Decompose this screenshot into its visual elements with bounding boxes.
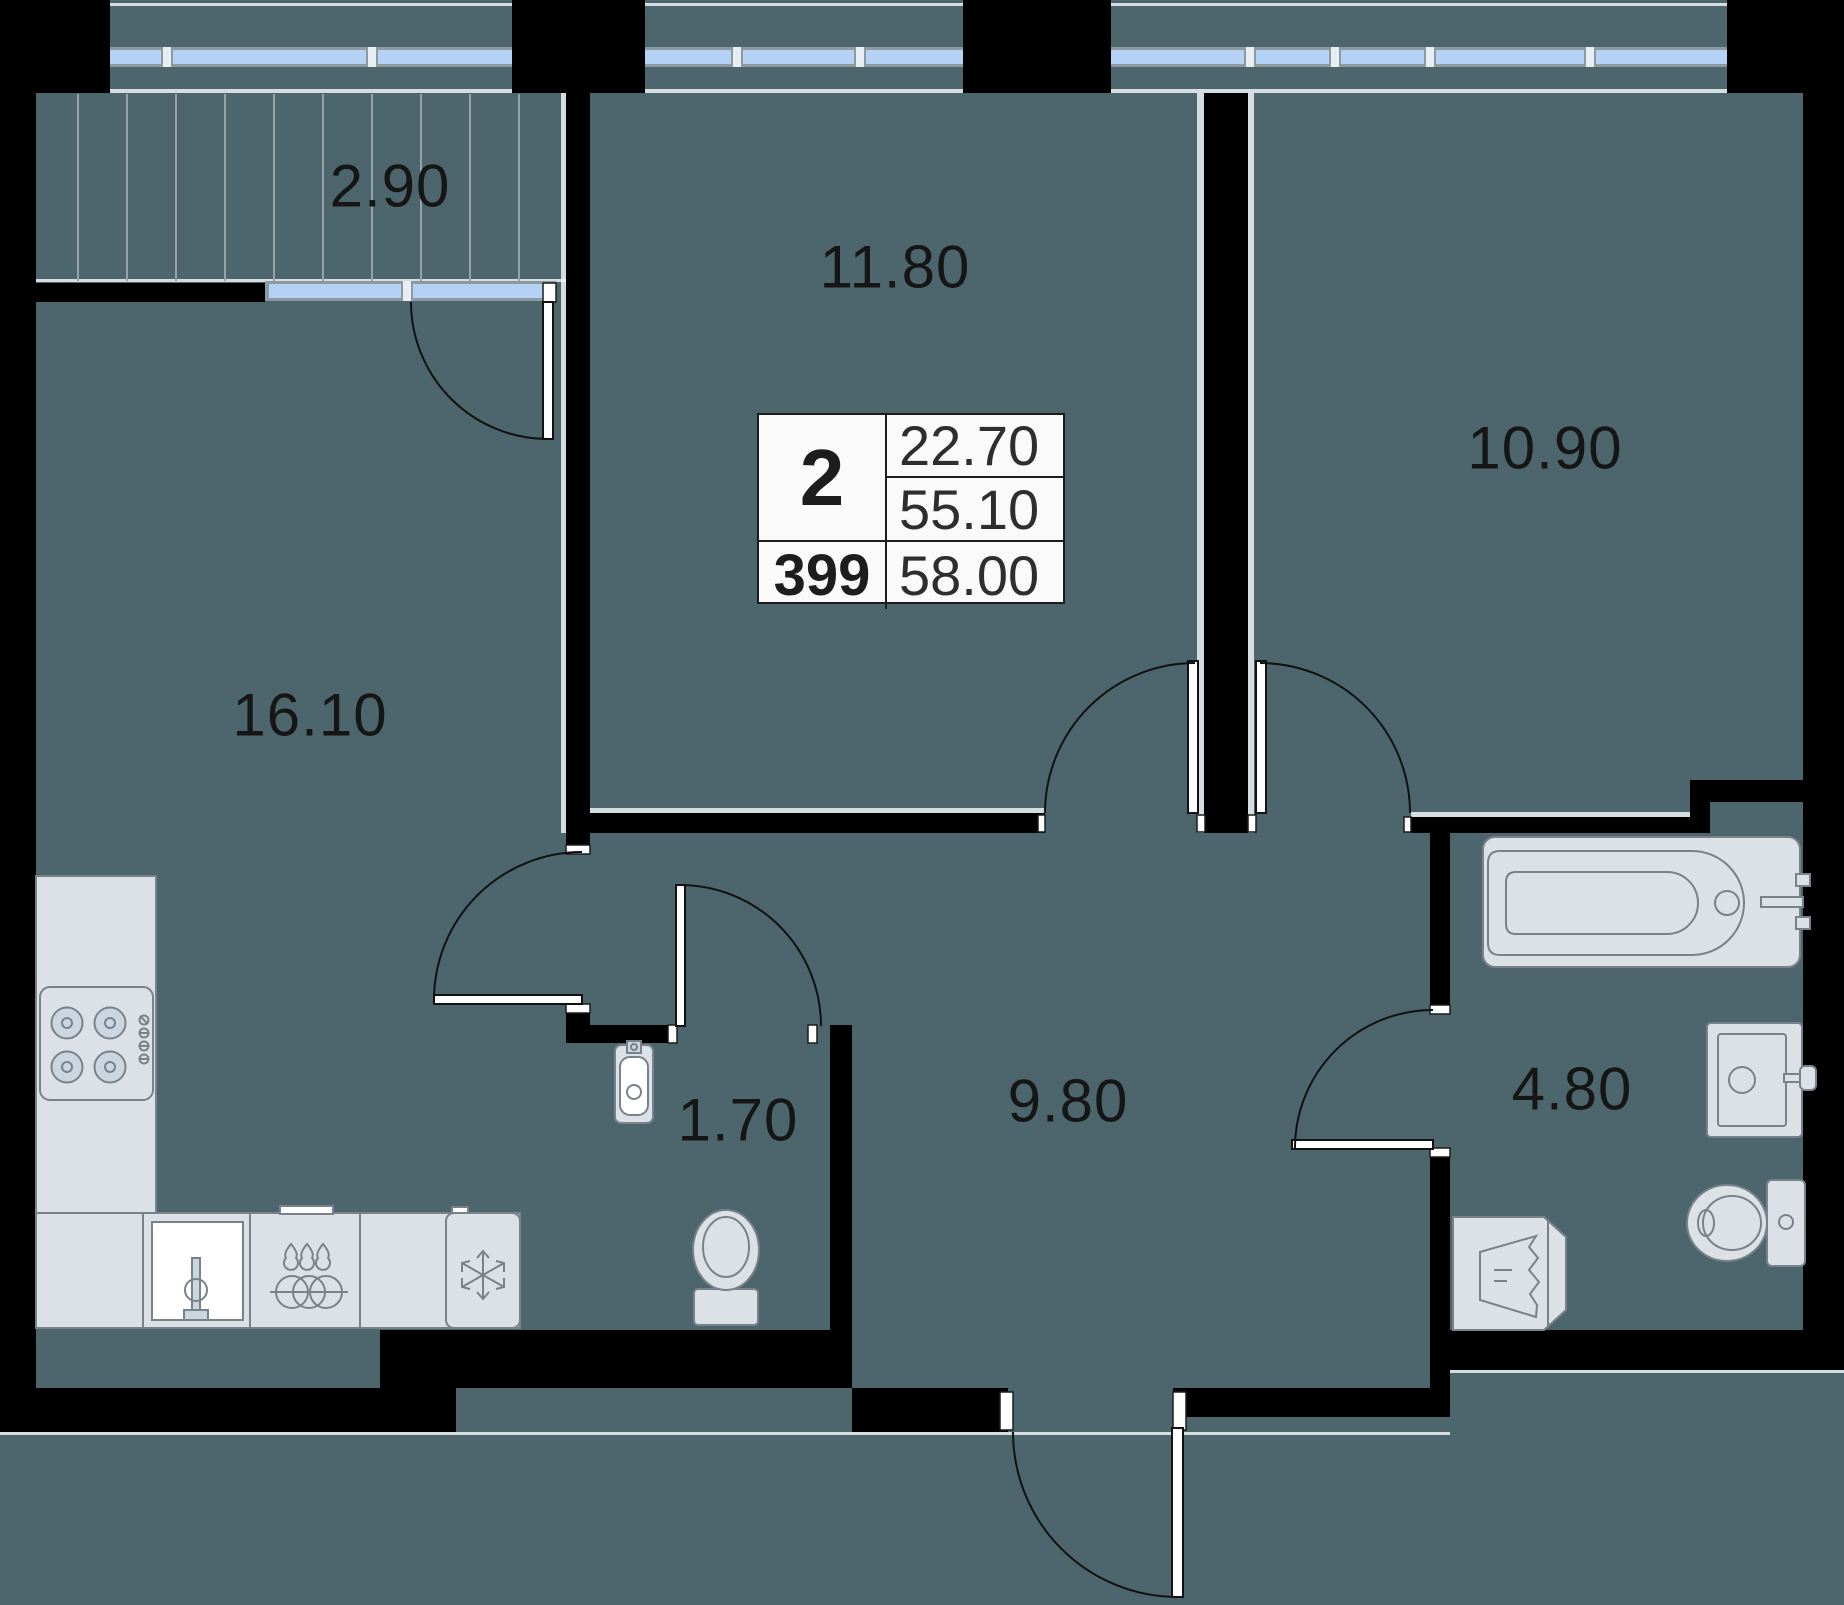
wall-bath-top — [1411, 817, 1690, 833]
info-living-area: 22.70 — [887, 415, 1063, 478]
wall-wc-right — [830, 1025, 852, 1330]
wall-hall-top — [590, 813, 1045, 833]
room-top-door-arc — [1045, 663, 1195, 813]
fridge-icon — [446, 1207, 520, 1328]
wall-bath-left-upper — [1430, 833, 1450, 1005]
wall-pier-c — [963, 0, 1111, 93]
wc-door-arc — [680, 885, 821, 1026]
room-right-door-arc — [1260, 663, 1410, 813]
room-label-room-right: 10.90 — [1467, 414, 1622, 483]
room-right-door-leaf — [1256, 661, 1266, 813]
wall-pier-b — [512, 0, 645, 93]
kitchen-door-arc — [434, 852, 582, 1000]
wall-bottom-c — [1173, 1388, 1450, 1417]
room-label-hallway: 9.80 — [1008, 1067, 1129, 1136]
wall-bottom-b — [852, 1388, 1008, 1432]
room-label-balcony: 2.90 — [330, 152, 451, 221]
room-label-bathroom: 4.80 — [1512, 1055, 1633, 1124]
balcony-door-arc — [411, 302, 548, 439]
balcony-hatch — [78, 94, 519, 281]
wc-sink-icon — [615, 1041, 653, 1123]
entrance-door-arc — [1013, 1432, 1178, 1597]
balcony-door-leaf — [543, 302, 553, 439]
wall-balcony-sill — [0, 283, 265, 302]
info-apartment-number: 399 — [759, 540, 887, 609]
bathroom-sink-icon — [1707, 1023, 1816, 1137]
wall-right-outer — [1803, 93, 1844, 1370]
info-floor-area: 55.10 — [887, 478, 1063, 540]
wc-door-leaf — [676, 885, 685, 1026]
info-total-area: 58.00 — [887, 540, 1063, 609]
room-label-wc: 1.70 — [678, 1086, 799, 1155]
wall-bath-bottom — [1430, 1330, 1803, 1370]
bathroom-toilet-icon — [1687, 1180, 1805, 1266]
wall-bath-left-lower — [1430, 1157, 1450, 1417]
wall-bottom-step — [380, 1330, 852, 1388]
wc-toilet-icon — [693, 1210, 759, 1325]
balcony-window — [265, 281, 556, 301]
room-top-door-leaf — [1188, 661, 1198, 813]
bathroom-door-arc — [1295, 1010, 1433, 1148]
kitchen-sink-icon — [152, 1222, 243, 1320]
bathroom-door-leaf — [1292, 1140, 1433, 1149]
wall-pier-a — [0, 0, 110, 93]
apartment-info-table: 2 22.70 55.10 399 58.00 — [757, 413, 1065, 604]
info-room-count: 2 — [759, 415, 887, 540]
floor-plan: 2.90 11.80 10.90 16.10 1.70 9.80 4.80 2 … — [0, 0, 1844, 1605]
wall-kitchen-room — [566, 93, 590, 845]
bathtub-icon — [1483, 837, 1810, 967]
washing-machine-icon — [1453, 1217, 1566, 1330]
room-label-kitchen-living: 16.10 — [232, 681, 387, 750]
entrance-door-leaf — [1172, 1428, 1183, 1597]
room-label-room-top: 11.80 — [820, 233, 971, 302]
stove-icon — [40, 987, 153, 1100]
kitchen-door-leaf — [434, 995, 582, 1004]
wall-pier-d — [1727, 0, 1844, 93]
wall-bottom-a — [0, 1388, 456, 1432]
facade-window-band — [36, 47, 1803, 67]
wall-between-rooms — [1204, 93, 1248, 833]
